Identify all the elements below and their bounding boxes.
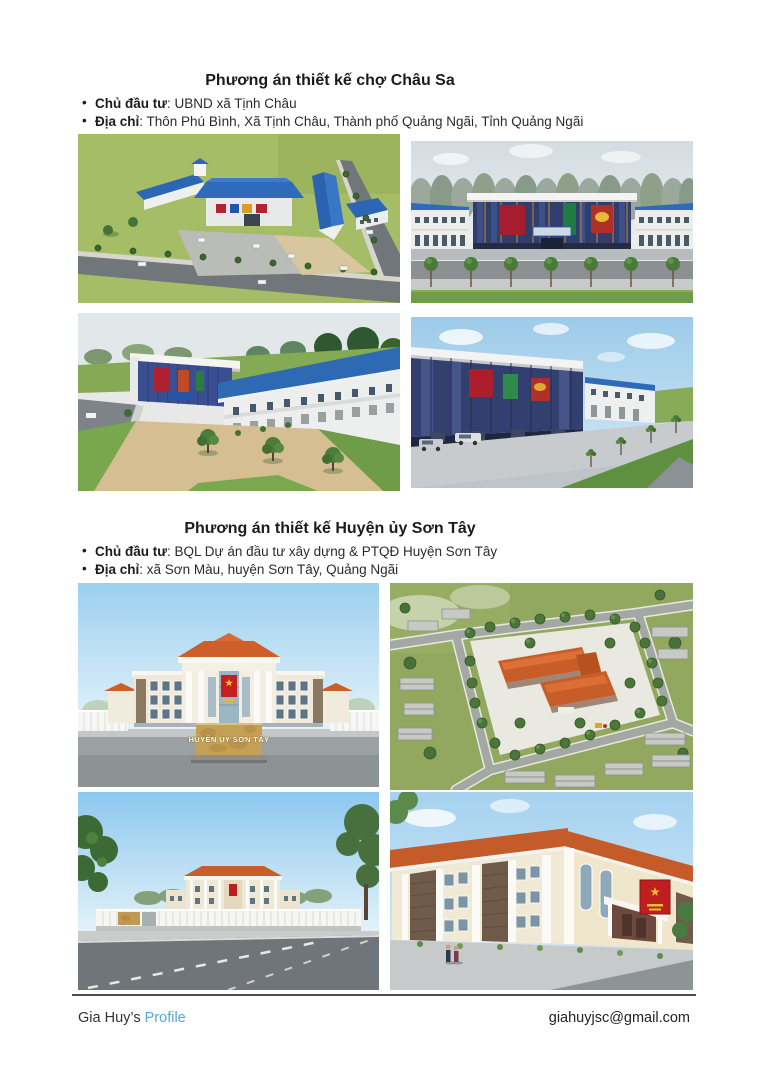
render-image-office-corner xyxy=(390,792,693,990)
bullet-investor: Chủ đầu tư: BQL Dự án đầu tư xây dựng & … xyxy=(78,543,643,561)
footer-divider xyxy=(72,994,696,996)
render-image-office-front: HUYỆN ỦY SƠN TÂY xyxy=(78,583,379,787)
bullet-investor: Chủ đầu tư: UBND xã Tịnh Châu xyxy=(78,95,643,113)
render-image-market-street xyxy=(411,317,693,488)
render-image-office-street xyxy=(78,792,379,990)
bullet-address: Địa chỉ: Thôn Phú Bình, Xã Tịnh Châu, Th… xyxy=(78,113,643,131)
section-bullets-son-tay: Chủ đầu tư: BQL Dự án đầu tư xây dựng & … xyxy=(78,543,643,579)
section-title-chau-sa: Phương án thiết kế chợ Châu Sa xyxy=(78,71,582,91)
bullet-address: Địa chỉ: xã Sơn Màu, huyện Sơn Tây, Quản… xyxy=(78,561,643,579)
document-page: Phương án thiết kế chợ Châu Sa Chủ đầu t… xyxy=(0,0,768,1086)
render-image-market-front xyxy=(411,141,693,303)
render-image-market-aerial xyxy=(78,134,400,303)
render-image-market-plaza xyxy=(78,313,400,491)
footer-email: giahuyjsc@gmail.com xyxy=(549,1008,690,1028)
footer-owner-text: Gia Huy’s xyxy=(78,1010,145,1026)
profile-link[interactable]: Profile xyxy=(145,1010,186,1026)
footer-owner: Gia Huy’s Profile xyxy=(78,1008,186,1028)
building-sign-text: HUYỆN ỦY SƠN TÂY xyxy=(188,735,269,744)
render-image-office-aerial xyxy=(390,583,693,790)
section-bullets-chau-sa: Chủ đầu tư: UBND xã Tịnh Châu Địa chỉ: T… xyxy=(78,95,643,131)
section-title-son-tay: Phương án thiết kế Huyện ủy Sơn Tây xyxy=(78,519,582,539)
